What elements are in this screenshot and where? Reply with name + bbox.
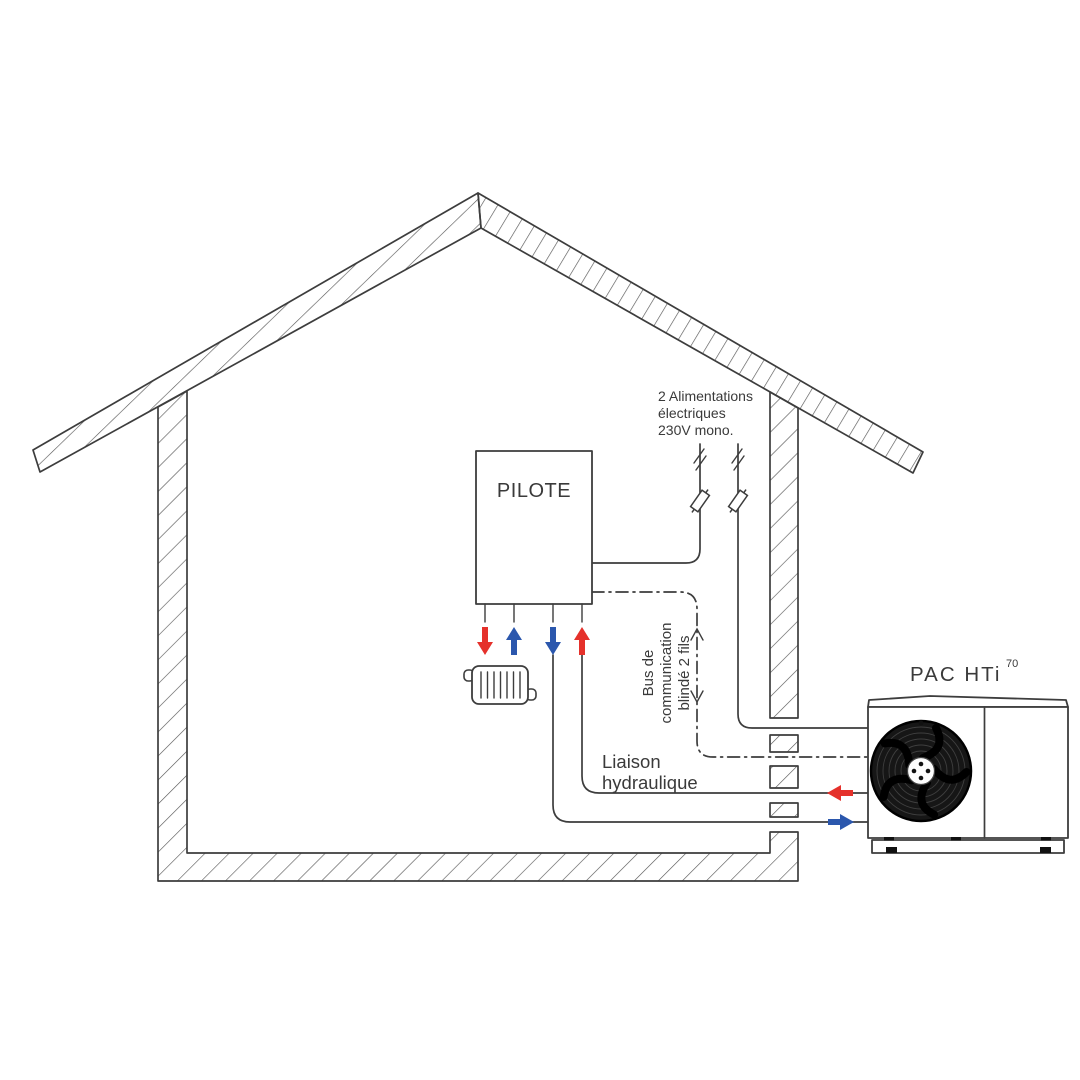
installation-diagram: 2 Alimentations électriques 230V mono. <box>0 0 1080 1080</box>
right-wall-segment <box>770 803 798 817</box>
bus-group: Bus de communication blindé 2 fils <box>592 592 868 757</box>
heat-pump-model-sup: 70 <box>1006 658 1018 670</box>
heat-pump-clip <box>951 837 961 841</box>
heat-pump-base <box>872 840 1064 853</box>
bus-label-line1: Bus de <box>640 650 657 697</box>
heat-pump-foot <box>1040 847 1051 853</box>
power-supply-label-line3: 230V mono. <box>658 422 734 438</box>
pilot-box <box>476 451 592 604</box>
radiator-icon <box>464 666 536 704</box>
power-wire-pilot <box>592 444 700 563</box>
fan-icon <box>871 721 971 822</box>
right-wall-segment <box>770 735 798 752</box>
roof-left-slope <box>33 193 481 472</box>
power-supply-label-line2: électriques <box>658 405 726 421</box>
bus-line <box>592 592 868 757</box>
flow-arrow-cold-up-icon <box>506 627 522 655</box>
flow-arrow-cold-down-icon <box>545 627 561 655</box>
heat-pump-label: PAC HTi <box>910 663 1001 686</box>
flow-arrow-hot-up-icon <box>574 627 590 655</box>
heat-pump-group: PAC HTi 70 <box>868 658 1068 853</box>
hydraulic-label-line2: hydraulique <box>602 772 698 793</box>
flow-arrow-hot-down-icon <box>477 627 493 655</box>
power-supply-label-line1: 2 Alimentations <box>658 388 753 404</box>
hot-flow-left-arrow-icon <box>827 785 853 801</box>
heat-pump-lid <box>868 696 1068 707</box>
bus-label-line3: blindé 2 fils <box>676 635 693 710</box>
heat-pump-foot <box>886 847 897 853</box>
pilot-box-group: PILOTE <box>476 451 592 655</box>
heat-pump-clip <box>884 837 894 841</box>
cold-flow-right-arrow-icon <box>828 814 854 830</box>
bus-label-line2: communication <box>658 623 675 724</box>
right-wall-upper <box>770 392 798 718</box>
right-wall-segment <box>770 766 798 788</box>
power-wire-heat-pump <box>738 444 868 728</box>
pilot-box-label: PILOTE <box>497 480 571 502</box>
hydraulic-line-cold <box>553 655 868 822</box>
hydraulic-group: Liaison hydraulique <box>553 655 868 830</box>
power-supply-group: 2 Alimentations électriques 230V mono. <box>592 388 868 728</box>
heat-pump-clip <box>1041 837 1051 841</box>
hydraulic-label-line1: Liaison <box>602 751 661 772</box>
page-background: 2 Alimentations électriques 230V mono. <box>0 0 1080 1080</box>
